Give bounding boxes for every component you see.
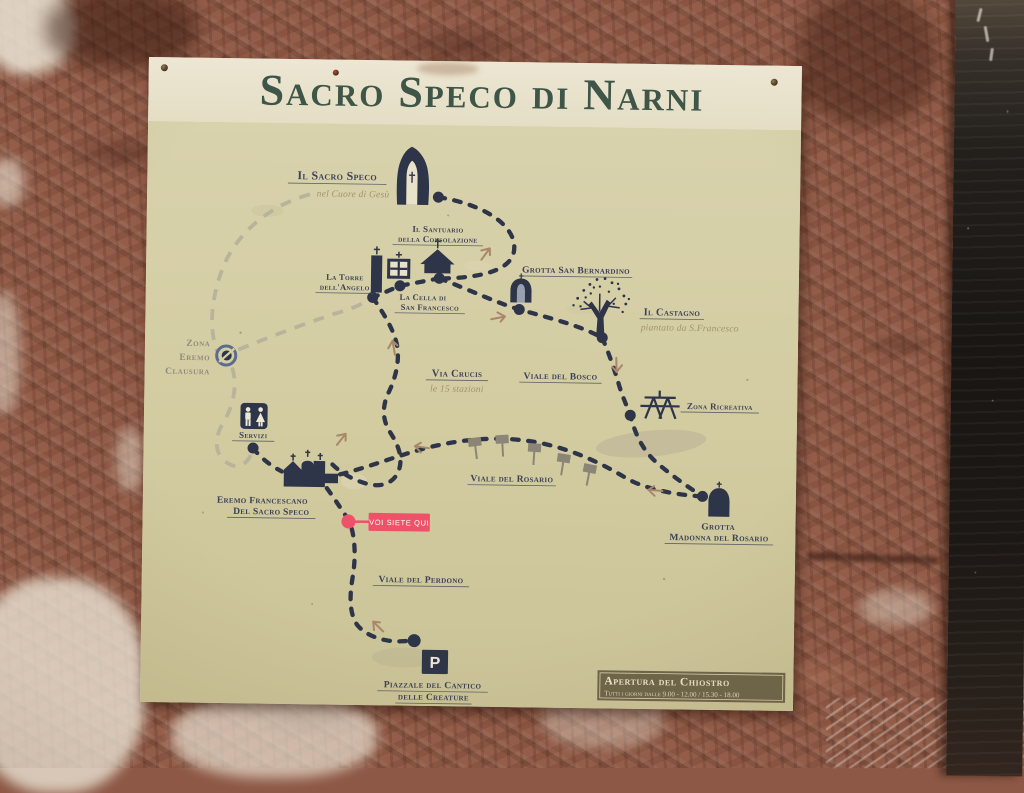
trail-map-svg: P Il Sacro Speco nel Cuore di Gesù Il Sa…: [140, 121, 801, 711]
paint-patch: [116, 428, 144, 492]
sign-title-strip: Sacro Speco di Narni: [148, 57, 802, 130]
paint-patch: [172, 694, 377, 778]
map-vignette: [140, 121, 801, 711]
rust-spot: [333, 70, 339, 76]
trail-map-sign: Sacro Speco di Narni: [140, 57, 802, 711]
wood-dark-stain: [798, 0, 936, 124]
map-area: P Il Sacro Speco nel Cuore di Gesù Il Sa…: [140, 121, 801, 711]
paint-patch: [0, 578, 146, 793]
screw: [161, 64, 168, 71]
paint-patch: [860, 590, 932, 626]
wood-beam: [946, 0, 1024, 776]
screw: [771, 79, 778, 86]
